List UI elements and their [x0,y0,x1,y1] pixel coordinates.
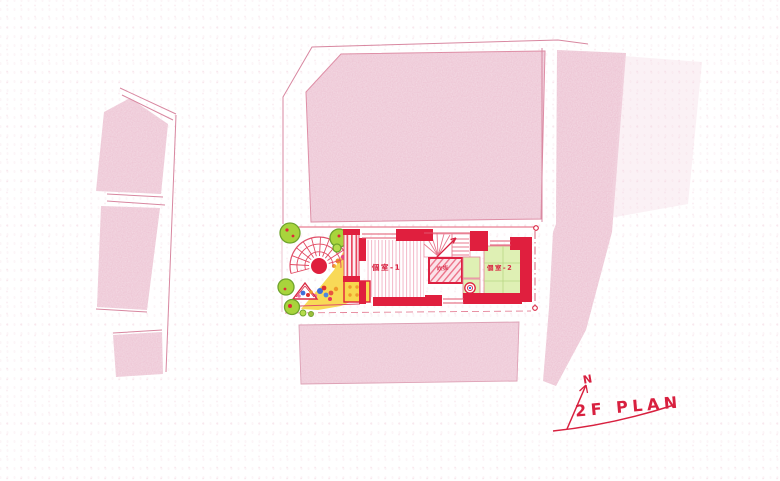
room1-label: 個室-1 [372,264,401,272]
terrace-bench [344,281,370,302]
bottom-neighbor-shading [299,322,519,384]
louver-screen [343,229,360,282]
gable-structure [293,283,317,299]
pinwheel-flower-icon [465,283,475,293]
boundary-marker-icon [534,226,539,231]
room2-label: 個室-2 [487,265,513,272]
left-neighbor-shading [96,88,176,377]
boundary-marker-icon [533,306,538,311]
floor-plan-sheet: 個室-1 個室-2 吹抜 N 2F PLAN [0,0,780,481]
right-neighbor-shading [542,48,702,386]
stair-center-post [311,258,327,274]
north-label: N [582,373,593,385]
